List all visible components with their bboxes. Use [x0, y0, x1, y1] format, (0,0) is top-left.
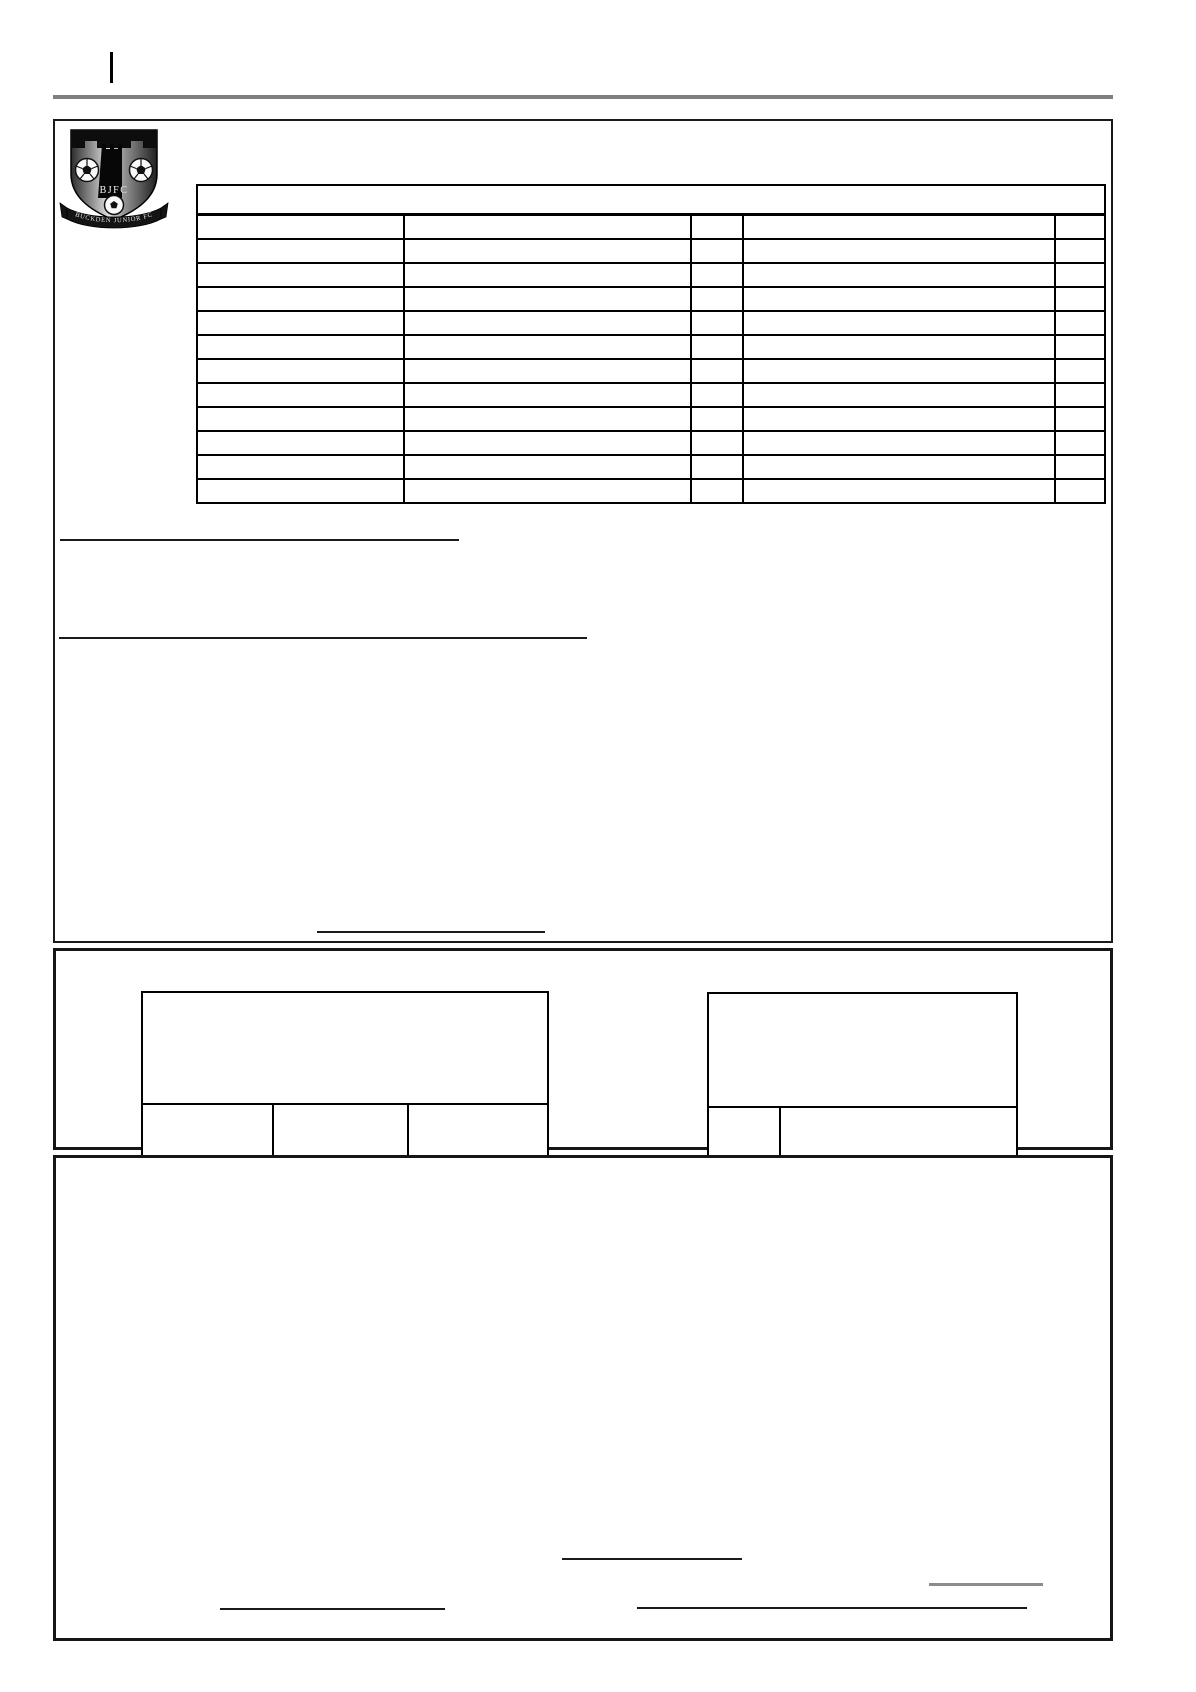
registration-table-cell — [404, 215, 691, 239]
crest-initials: BJFC — [100, 185, 129, 196]
registration-table-cell — [743, 287, 1055, 311]
registration-table-cell — [691, 287, 743, 311]
registration-table-cell — [197, 407, 404, 431]
registration-table-cell — [743, 335, 1055, 359]
registration-table-cell — [404, 311, 691, 335]
registration-table-cell — [743, 407, 1055, 431]
document-page: BJFC BUCKDEN JUNIOR FC — [0, 0, 1196, 1692]
registration-table-cell — [743, 239, 1055, 263]
registration-table-cell — [197, 215, 404, 239]
signature-line-wide — [637, 1607, 1027, 1609]
registration-table-cell — [197, 311, 404, 335]
table-row — [197, 383, 1105, 407]
registration-table-cell — [1055, 215, 1105, 239]
signature-line-right-gray — [929, 1583, 1043, 1586]
registration-table-cell — [743, 215, 1055, 239]
registration-table-cell — [743, 431, 1055, 455]
registration-table-cell — [691, 383, 743, 407]
registration-table-header-row — [197, 185, 1105, 215]
registration-table-cell — [1055, 455, 1105, 479]
registration-table-cell — [691, 455, 743, 479]
registration-table-cell — [743, 479, 1055, 503]
signature-line-center — [562, 1558, 742, 1560]
table-row — [197, 263, 1105, 287]
registration-table-cell — [404, 431, 691, 455]
table-row — [197, 239, 1105, 263]
registration-table-cell — [691, 431, 743, 455]
registration-table-cell — [404, 383, 691, 407]
right-mini-table-title-cell — [708, 993, 1017, 1107]
registration-table — [196, 184, 1106, 504]
blank-center-line — [317, 931, 545, 933]
registration-table-cell — [691, 215, 743, 239]
registration-table-cell — [1055, 335, 1105, 359]
registration-table-cell — [404, 359, 691, 383]
registration-table-cell — [691, 239, 743, 263]
table-row — [197, 407, 1105, 431]
registration-table-cell — [197, 431, 404, 455]
registration-table-cell — [1055, 359, 1105, 383]
registration-table-cell — [743, 455, 1055, 479]
table-row — [197, 335, 1105, 359]
registration-table-cell — [691, 407, 743, 431]
right-mini-table-header-row — [708, 993, 1017, 1107]
registration-table-cell — [743, 359, 1055, 383]
registration-table-cell — [197, 359, 404, 383]
registration-table-cell — [1055, 263, 1105, 287]
registration-table-cell — [197, 479, 404, 503]
left-mini-table-header-row — [142, 992, 548, 1104]
table-row — [197, 311, 1105, 335]
crest-football-bottom — [105, 196, 124, 215]
left-mini-table-title-cell — [142, 992, 548, 1104]
table-row — [197, 479, 1105, 503]
registration-table-cell — [1055, 431, 1105, 455]
registration-table-cell — [691, 263, 743, 287]
registration-table-cell — [197, 263, 404, 287]
section-box-bottom — [53, 1155, 1113, 1641]
registration-table-cell — [691, 311, 743, 335]
registration-table-cell — [404, 455, 691, 479]
blank-heading-line-2 — [59, 637, 587, 639]
crest-football-right — [130, 159, 153, 182]
text-cursor-mark — [110, 52, 113, 83]
registration-table-cell — [1055, 479, 1105, 503]
registration-table-cell — [404, 287, 691, 311]
registration-table-cell — [404, 239, 691, 263]
crest-football-left — [76, 159, 99, 182]
registration-table-cell — [197, 455, 404, 479]
registration-table-cell — [691, 359, 743, 383]
registration-table-cell — [743, 383, 1055, 407]
registration-table-cell — [743, 263, 1055, 287]
registration-table-cell — [197, 239, 404, 263]
table-row — [197, 431, 1105, 455]
registration-table-cell — [1055, 407, 1105, 431]
registration-table-cell — [1055, 311, 1105, 335]
section-box-top: BJFC BUCKDEN JUNIOR FC — [53, 119, 1113, 943]
registration-table-cell — [743, 311, 1055, 335]
registration-table-cell — [1055, 287, 1105, 311]
club-crest-icon: BJFC BUCKDEN JUNIOR FC — [59, 124, 169, 236]
registration-table-cell — [197, 383, 404, 407]
signature-line-left — [220, 1608, 445, 1610]
table-row — [197, 215, 1105, 239]
page-top-divider — [53, 95, 1113, 99]
registration-table-cell — [404, 335, 691, 359]
table-row — [197, 455, 1105, 479]
table-row — [197, 287, 1105, 311]
registration-table-title-cell — [197, 185, 1105, 215]
registration-table-cell — [404, 263, 691, 287]
section-box-middle — [53, 948, 1113, 1150]
table-row — [197, 359, 1105, 383]
blank-heading-line-1 — [60, 539, 459, 541]
registration-table-cell — [197, 335, 404, 359]
registration-table-cell — [691, 335, 743, 359]
registration-table-cell — [1055, 383, 1105, 407]
registration-table-cell — [197, 287, 404, 311]
registration-table-cell — [404, 407, 691, 431]
registration-table-cell — [691, 479, 743, 503]
registration-table-cell — [1055, 239, 1105, 263]
registration-table-cell — [404, 479, 691, 503]
